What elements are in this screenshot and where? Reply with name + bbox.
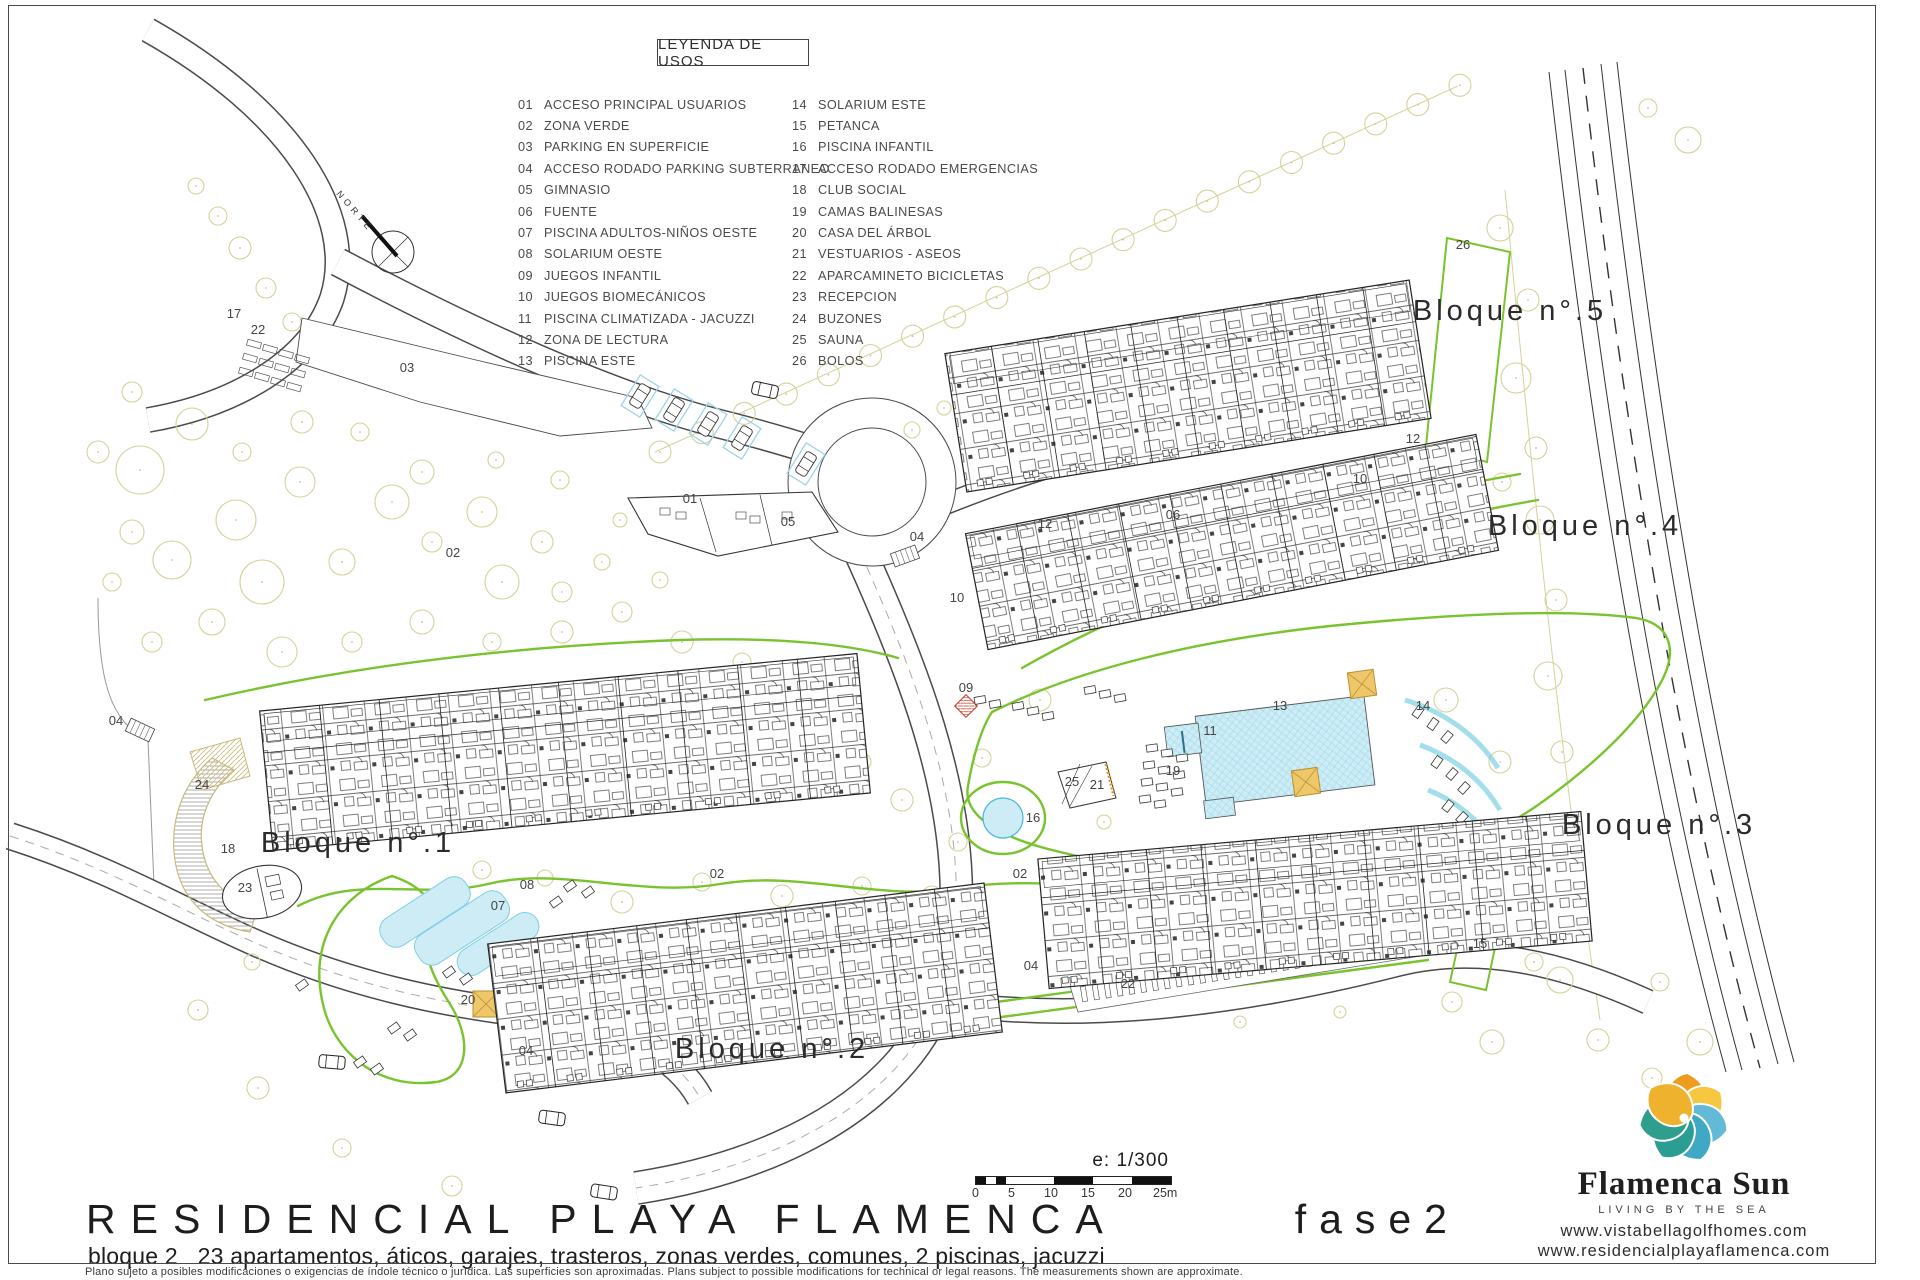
balcony (1407, 557, 1414, 564)
road-edge (1565, 70, 1742, 1070)
tree-center (281, 651, 283, 653)
tree-center (351, 641, 353, 643)
balcony (1348, 420, 1355, 427)
balcony (1161, 605, 1168, 612)
tree-center (481, 511, 483, 513)
balcony (923, 1031, 930, 1038)
legend-item-label: JUEGOS INFANTIL (544, 269, 661, 283)
legend-column-1: 01ACCESO PRINCIPAL USUARIOS02ZONA VERDE0… (518, 94, 830, 372)
legend-item-label: PETANCA (818, 119, 880, 133)
sun-lounger (1027, 707, 1039, 716)
scale-tick: 25m (1153, 1186, 1177, 1200)
balcony (625, 1067, 632, 1074)
plan-marker: 17 (227, 306, 241, 321)
tree-center (1533, 961, 1535, 963)
tree-center (1459, 84, 1461, 86)
sun-lounger (1141, 778, 1153, 786)
tree-center (1699, 1041, 1701, 1043)
tree-center (741, 661, 743, 663)
legend-item-label: ZONA DE LECTURA (544, 333, 668, 347)
balcony (645, 804, 652, 811)
legend-item: 09JUEGOS INFANTIL (518, 265, 830, 286)
bike-rack (242, 353, 257, 363)
balcony (1356, 567, 1363, 574)
sun-lounger (1012, 702, 1024, 711)
tree-center (139, 469, 141, 471)
tree-center (981, 757, 983, 759)
tree-center (151, 641, 153, 643)
plan-marker: 04 (1024, 958, 1038, 973)
scale-tick: 20 (1118, 1186, 1132, 1200)
scale-tick: 15 (1081, 1186, 1095, 1200)
legend-item-label: ACCESO PRINCIPAL USUARIOS (544, 98, 746, 112)
balcony (825, 787, 832, 794)
sun-lounger (1156, 783, 1168, 791)
plan-marker: 07 (491, 898, 505, 913)
tree-center (195, 185, 197, 187)
sun-lounger (1146, 744, 1158, 752)
tree-center (1080, 258, 1082, 260)
plan-marker: 02 (710, 866, 724, 881)
legend-column-2: 14SOLARIUM ESTE15PETANCA16PISCINA INFANT… (792, 94, 1038, 372)
block-label: Bloque n°.4 (1488, 510, 1682, 542)
balcony (774, 792, 781, 799)
tree-center (1687, 139, 1689, 141)
legend-item-number: 20 (792, 226, 818, 240)
tree-center (559, 479, 561, 481)
legend-item: 25SAUNA (792, 329, 1038, 350)
tree-center (1103, 821, 1105, 823)
legend-item: 13PISCINA ESTE (518, 351, 830, 372)
plan-marker: 06 (1166, 507, 1180, 522)
balcony (1254, 586, 1261, 593)
legend-item: 07PISCINA ADULTOS-NIÑOS OESTE (518, 222, 830, 243)
tree-center (561, 631, 563, 633)
block-label: Bloque n°.2 (675, 1033, 869, 1065)
balcony (1032, 470, 1039, 477)
flamenca-sun-logo-icon (1620, 1060, 1750, 1172)
balcony (914, 1032, 921, 1039)
balcony (526, 815, 533, 822)
tree-center (217, 215, 219, 217)
legend-item-number: 19 (792, 205, 818, 219)
plan-marker: 20 (461, 992, 475, 1007)
legend-item-number: 01 (518, 98, 544, 112)
tree-center (1515, 377, 1517, 379)
balcony (1152, 606, 1159, 613)
tree-center (495, 459, 497, 461)
sun-lounger (1114, 694, 1126, 703)
tree-center (901, 799, 903, 801)
tree-center (1659, 981, 1661, 983)
tree-center (1555, 599, 1557, 601)
balcony (1263, 585, 1270, 592)
tree-center (621, 901, 623, 903)
tree-center (943, 407, 945, 409)
legend-item-number: 17 (792, 162, 818, 176)
legend-item: 20CASA DEL ÁRBOL (792, 222, 1038, 243)
balcony (1305, 577, 1312, 584)
legend-item: 26BOLOS (792, 351, 1038, 372)
legend-item-number: 14 (792, 98, 818, 112)
balcony (1209, 442, 1216, 449)
balcony (526, 1080, 533, 1087)
tree-center (359, 431, 361, 433)
legend-item-label: PISCINA INFANTIL (818, 140, 934, 154)
tree-center (1291, 162, 1293, 164)
legend-item-label: CASA DEL ÁRBOL (818, 226, 932, 240)
legend-item: 23RECEPCION (792, 287, 1038, 308)
sun-lounger (1171, 788, 1183, 796)
legend-item-number: 13 (518, 354, 544, 368)
legend-item-number: 26 (792, 354, 818, 368)
legend-item: 03PARKING EN SUPERFICIE (518, 137, 830, 158)
legend-item-number: 16 (792, 140, 818, 154)
balcony (517, 1081, 524, 1088)
balcony (977, 479, 984, 486)
plan-marker: 21 (1090, 777, 1104, 792)
plan-marker: 11 (1203, 723, 1217, 738)
balcony (1551, 934, 1558, 941)
balcony (1311, 426, 1318, 433)
legend-item-number: 15 (792, 119, 818, 133)
block-label: Bloque n°.5 (1413, 295, 1607, 327)
tree-center (131, 391, 133, 393)
balcony (567, 1075, 574, 1082)
balcony (1279, 958, 1286, 965)
legend-item-label: RECEPCION (818, 290, 897, 304)
legend-item: 19CAMAS BALINESAS (792, 201, 1038, 222)
scale-tick: 10 (1044, 1186, 1058, 1200)
balcony (654, 803, 661, 810)
legend-item-label: SAUNA (818, 333, 864, 347)
legend-item: 18CLUB SOCIAL (792, 180, 1038, 201)
balcony (1110, 615, 1117, 622)
title-line: RESIDENCIAL PLAYA FLAMENCA fase2 (86, 1196, 1460, 1243)
legend-item: 17ACCESO RODADO EMERGENCIAS (792, 158, 1038, 179)
balcony (475, 820, 482, 827)
tree-center (1164, 220, 1166, 222)
tree-center (659, 579, 661, 581)
sun-lounger (370, 1063, 383, 1075)
tree-center (659, 451, 661, 453)
balcony (1163, 450, 1170, 457)
disclaimer-text: Plano sujeto a posibles modificaciones o… (85, 1266, 1845, 1278)
tree-center (561, 591, 563, 593)
tree-center (421, 471, 423, 473)
plan-marker: 24 (195, 777, 209, 792)
entrance-building (628, 492, 838, 556)
legend-item-label: JUEGOS BIOMECÁNICOS (544, 290, 706, 304)
sun-lounger (1161, 749, 1173, 757)
legend-item: 10JUEGOS BIOMECÁNICOS (518, 287, 830, 308)
tree-center (781, 895, 783, 897)
balcony (1212, 595, 1219, 602)
tree-center (1339, 1011, 1341, 1013)
balcony (1203, 596, 1210, 603)
balcony (1467, 545, 1474, 552)
legend-item-label: SOLARIUM ESTE (818, 98, 926, 112)
tree-center (421, 621, 423, 623)
balcony (1170, 967, 1177, 974)
scale-label: e: 1/300 (975, 1150, 1171, 1172)
tree-center (1559, 979, 1561, 981)
balcony (705, 798, 712, 805)
tree-center (1239, 1021, 1241, 1023)
balcony (1451, 943, 1458, 950)
plan-marker: 23 (238, 880, 252, 895)
balcony (1458, 547, 1465, 554)
balcony (765, 792, 772, 799)
plan-marker: 22 (1121, 976, 1135, 991)
balcony (964, 1026, 971, 1033)
tree-center (111, 581, 113, 583)
pool-step (1204, 797, 1236, 819)
balcony (1314, 575, 1321, 582)
legend-item: 06FUENTE (518, 201, 830, 222)
legend-item-number: 24 (792, 312, 818, 326)
plan-marker: 04 (910, 529, 924, 544)
tree-center (911, 429, 913, 431)
plan-marker: 12 (1406, 431, 1420, 446)
roundabout-island (818, 428, 926, 536)
legend-item: 21VESTUARIOS - ASEOS (792, 244, 1038, 265)
legend-item: 08SOLARIUM OESTE (518, 244, 830, 265)
sun-lounger (1154, 800, 1166, 808)
balcony (1496, 939, 1503, 946)
tree-center (1561, 751, 1563, 753)
plan-marker: 14 (1416, 698, 1430, 713)
tree-center (171, 559, 173, 561)
plan-marker: 15 (1473, 936, 1487, 951)
legend-item-number: 03 (518, 140, 544, 154)
legend-item-label: ACCESO RODADO PARKING SUBTERRANEO (544, 162, 830, 176)
tree-house-pergola (1347, 669, 1376, 698)
tree-center (1499, 761, 1501, 763)
bolos-area (1426, 238, 1510, 462)
tree-center (301, 421, 303, 423)
legend-item-number: 02 (518, 119, 544, 133)
sun-lounger (1446, 768, 1458, 781)
legend-item-number: 11 (518, 312, 544, 326)
balcony (1101, 616, 1108, 623)
legend-item-label: ZONA VERDE (544, 119, 630, 133)
tree-center (619, 519, 621, 521)
sun-lounger (1441, 731, 1453, 744)
plan-marker: 22 (251, 322, 265, 337)
legend-item: 05GIMNASIO (518, 180, 830, 201)
sun-lounger (442, 966, 455, 978)
legend-item: 02ZONA VERDE (518, 115, 830, 136)
brand-tagline: LIVING BY THE SEA (1559, 1204, 1809, 1216)
balcony (1560, 933, 1567, 940)
block-label: Bloque n°.1 (261, 827, 455, 859)
balcony (1416, 555, 1423, 562)
tree-center (1547, 675, 1549, 677)
tree-center (391, 501, 393, 503)
legend-item-label: CAMAS BALINESAS (818, 205, 943, 219)
tree-center (191, 423, 193, 425)
scale-tick: 0 (972, 1186, 979, 1200)
car-icon (538, 1110, 566, 1126)
tree-center (601, 561, 603, 563)
balcony (1388, 948, 1395, 955)
tree-center (1445, 699, 1447, 701)
scale-ticks: 0510152025m (975, 1185, 1171, 1199)
legend-item-label: PARKING EN SUPERFICIE (544, 140, 709, 154)
legend-item-number: 18 (792, 183, 818, 197)
tree-center (681, 641, 683, 643)
sun-lounger (1431, 755, 1443, 768)
legend-item: 24BUZONES (792, 308, 1038, 329)
balcony (1116, 457, 1123, 464)
balcony (973, 1025, 980, 1032)
legend-item-label: SOLARIUM OESTE (544, 247, 662, 261)
balcony (1395, 413, 1402, 420)
car-icon (318, 1054, 345, 1069)
legend-item: 12ZONA DE LECTURA (518, 329, 830, 350)
tree-center (1647, 107, 1649, 109)
balcony (1225, 963, 1232, 970)
legend-item-label: ACCESO RODADO EMERGENCIAS (818, 162, 1038, 176)
balcony (586, 810, 593, 817)
balcony (834, 786, 841, 793)
apartment-block (260, 654, 871, 851)
tree-center (1375, 123, 1377, 125)
road-edge (1601, 64, 1778, 1064)
legend-item-label: FUENTE (544, 205, 597, 219)
balcony (1264, 434, 1271, 441)
tree-center (1535, 447, 1537, 449)
balcony (1070, 465, 1077, 472)
balcony (1179, 967, 1186, 974)
legend-item-number: 05 (518, 183, 544, 197)
balcony (1218, 441, 1225, 448)
tree-house-pergola (1291, 767, 1320, 796)
tree-center (1038, 277, 1040, 279)
sun-lounger (1084, 686, 1096, 695)
balcony (1255, 435, 1262, 442)
sun-lounger (403, 1029, 416, 1041)
legend-item-number: 23 (792, 290, 818, 304)
balcony (1397, 948, 1404, 955)
plan-marker: 13 (1273, 698, 1287, 713)
balcony (1505, 938, 1512, 945)
balcony (1365, 565, 1372, 572)
tree-center (491, 641, 493, 643)
balcony (595, 809, 602, 816)
project-title: RESIDENCIAL PLAYA FLAMENCA (86, 1196, 1118, 1243)
tree-center (211, 621, 213, 623)
balcony (1357, 419, 1364, 426)
balcony (1079, 463, 1086, 470)
plan-marker: 12 (1038, 516, 1052, 531)
legend-item-number: 06 (518, 205, 544, 219)
road-edge (1617, 62, 1794, 1062)
tree-center (481, 869, 483, 871)
legend-item-label: PISCINA ESTE (544, 354, 636, 368)
tree-center (1499, 227, 1501, 229)
bike-rack (246, 339, 261, 349)
tree-center (431, 541, 433, 543)
tree-center (131, 531, 133, 533)
plan-marker: 26 (1456, 237, 1470, 252)
tree-center (828, 374, 830, 376)
scale-bar (975, 1176, 1172, 1185)
tree-center (785, 393, 787, 395)
balcony (1050, 626, 1057, 633)
tree-center (541, 541, 543, 543)
balcony (1071, 976, 1078, 983)
legend-item: 22APARCAMINETO BICICLETAS (792, 265, 1038, 286)
sun-lounger (549, 896, 562, 908)
balcony (1288, 957, 1295, 964)
tree-center (1206, 200, 1208, 202)
sun-lounger (974, 696, 986, 705)
balcony (1023, 472, 1030, 479)
tree-center (1039, 699, 1041, 701)
sun-lounger (1458, 782, 1471, 795)
plan-marker: 02 (1013, 866, 1027, 881)
kids-pool (983, 798, 1023, 838)
plan-marker: 08 (520, 877, 534, 892)
balcony (1008, 634, 1015, 641)
balcony (1171, 448, 1178, 455)
tree-center (291, 321, 293, 323)
tree-center (1491, 1041, 1493, 1043)
legend-item: 01ACCESO PRINCIPAL USUARIOS (518, 94, 830, 115)
plan-marker: 10 (1353, 471, 1367, 486)
sun-lounger (563, 880, 576, 892)
legend-item-label: BOLOS (818, 354, 864, 368)
tree-center (257, 1087, 259, 1089)
plan-marker: 16 (1026, 810, 1040, 825)
legend-item-number: 09 (518, 269, 544, 283)
sun-lounger (1176, 754, 1188, 762)
balcony (576, 1074, 583, 1081)
legend-item-label: APARCAMINETO BICICLETAS (818, 269, 1004, 283)
tree-center (451, 1185, 453, 1187)
balcony (1059, 624, 1066, 631)
sun-lounger (989, 700, 1001, 709)
legend-item-number: 07 (518, 226, 544, 240)
tree-center (265, 287, 267, 289)
plan-marker: 25 (1065, 774, 1079, 789)
balcony (1062, 977, 1069, 984)
plan-sheet: NORTE17220302010504061210120910111319252… (0, 0, 1920, 1280)
balcony (1125, 456, 1132, 463)
tree-center (341, 1147, 343, 1149)
legend-item: 04ACCESO RODADO PARKING SUBTERRANEO (518, 158, 830, 179)
balcony (986, 478, 993, 485)
tree-center (1417, 104, 1419, 106)
legend-item-number: 22 (792, 269, 818, 283)
legend-item-number: 08 (518, 247, 544, 261)
tree-center (1122, 239, 1124, 241)
balcony (466, 821, 473, 828)
phase-label: fase2 (1295, 1196, 1460, 1243)
scale-tick: 5 (1008, 1186, 1015, 1200)
tree-center (1501, 481, 1503, 483)
car-icon (751, 381, 779, 399)
legend-item: 14SOLARIUM ESTE (792, 94, 1038, 115)
plan-marker: 02 (446, 545, 460, 560)
brand-website-2: www.residencialplayaflamenca.com (1524, 1242, 1844, 1261)
brand-name: Flamenca Sun (1559, 1166, 1809, 1203)
legend-item-label: BUZONES (818, 312, 882, 326)
balcony (1442, 944, 1449, 951)
plan-marker: 18 (221, 841, 235, 856)
